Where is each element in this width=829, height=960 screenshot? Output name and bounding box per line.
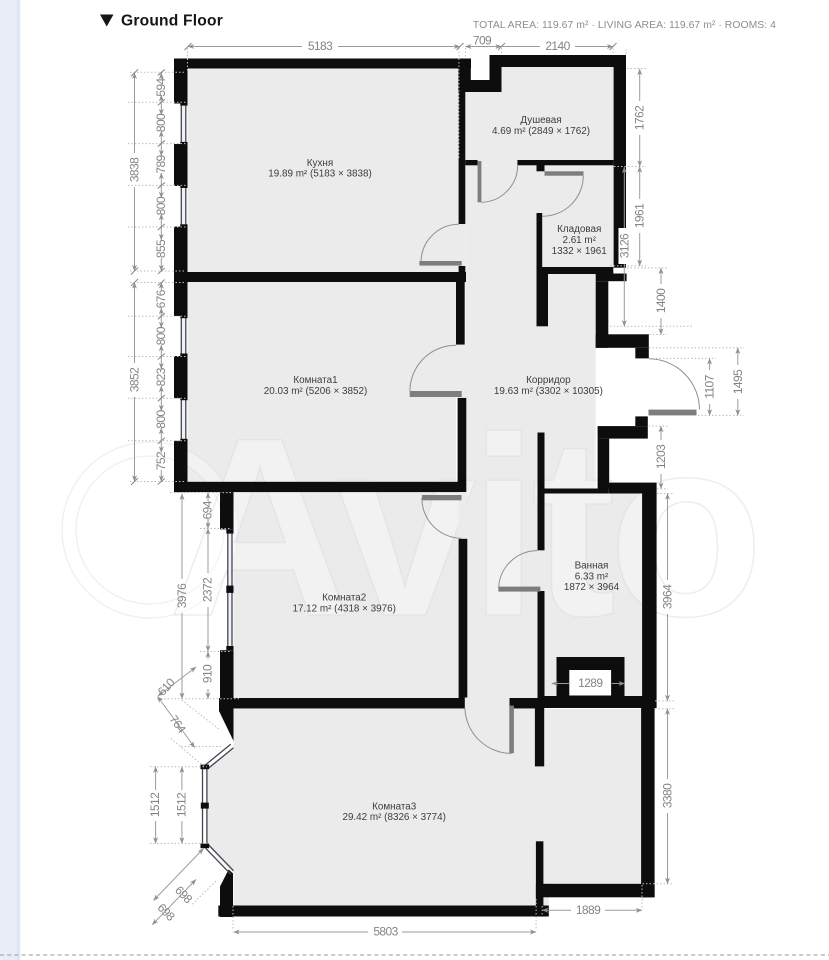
svg-text:6.33 m²: 6.33 m² bbox=[575, 572, 609, 583]
svg-text:789: 789 bbox=[154, 154, 168, 173]
svg-text:3126: 3126 bbox=[617, 233, 631, 258]
svg-text:800: 800 bbox=[154, 409, 168, 428]
svg-text:2.61 m²: 2.61 m² bbox=[562, 235, 596, 246]
svg-text:3852: 3852 bbox=[128, 367, 142, 392]
svg-text:19.63 m² (3302 × 10305): 19.63 m² (3302 × 10305) bbox=[494, 386, 603, 397]
svg-text:610: 610 bbox=[155, 675, 178, 699]
svg-text:Корридор: Корридор bbox=[526, 375, 571, 386]
svg-text:20.03 m² (5206 × 3852): 20.03 m² (5206 × 3852) bbox=[264, 386, 367, 397]
svg-text:Ванная: Ванная bbox=[575, 561, 609, 572]
svg-text:1332 × 1961: 1332 × 1961 bbox=[552, 246, 608, 257]
svg-text:19.89 m² (5183 × 3838): 19.89 m² (5183 × 3838) bbox=[268, 168, 371, 179]
svg-text:3838: 3838 bbox=[128, 157, 142, 182]
svg-text:1107: 1107 bbox=[703, 374, 717, 398]
svg-text:855: 855 bbox=[154, 239, 168, 258]
svg-text:3964: 3964 bbox=[661, 584, 675, 609]
svg-text:4.69 m² (2849 × 1762): 4.69 m² (2849 × 1762) bbox=[492, 126, 590, 137]
svg-text:698: 698 bbox=[172, 883, 195, 906]
svg-text:800: 800 bbox=[154, 326, 168, 345]
svg-text:764: 764 bbox=[166, 713, 189, 737]
svg-text:1762: 1762 bbox=[633, 105, 647, 130]
svg-text:Комната3: Комната3 bbox=[372, 801, 417, 812]
svg-text:17.12 m² (4318 × 3976): 17.12 m² (4318 × 3976) bbox=[292, 603, 395, 614]
svg-text:29.42 m² (8326 × 3774): 29.42 m² (8326 × 3774) bbox=[342, 812, 445, 823]
svg-text:1512: 1512 bbox=[174, 792, 188, 817]
svg-text:3976: 3976 bbox=[175, 583, 189, 608]
svg-text:3380: 3380 bbox=[661, 783, 675, 808]
svg-text:800: 800 bbox=[154, 113, 168, 132]
svg-text:594: 594 bbox=[154, 77, 168, 96]
svg-text:752: 752 bbox=[154, 451, 168, 470]
svg-text:823: 823 bbox=[154, 367, 168, 386]
svg-text:2140: 2140 bbox=[545, 39, 570, 53]
svg-text:1961: 1961 bbox=[633, 203, 647, 228]
svg-text:Кухня: Кухня bbox=[307, 158, 333, 169]
svg-text:Ground Floor: Ground Floor bbox=[121, 13, 223, 30]
svg-text:5183: 5183 bbox=[308, 39, 333, 53]
svg-text:Душевая: Душевая bbox=[520, 115, 561, 126]
svg-text:1512: 1512 bbox=[148, 792, 162, 817]
svg-text:TOTAL AREA: 119.67 m² · LIVIN: TOTAL AREA: 119.67 m² · LIVING AREA: 119… bbox=[473, 20, 776, 31]
svg-text:1495: 1495 bbox=[731, 369, 745, 394]
svg-text:5803: 5803 bbox=[373, 925, 398, 939]
svg-text:Комната1: Комната1 bbox=[293, 375, 338, 386]
svg-text:910: 910 bbox=[200, 664, 214, 683]
svg-text:1203: 1203 bbox=[654, 444, 668, 469]
svg-text:Кладовая: Кладовая bbox=[557, 224, 601, 235]
svg-text:676: 676 bbox=[154, 289, 168, 308]
svg-text:Комната2: Комната2 bbox=[322, 593, 366, 604]
svg-text:709: 709 bbox=[473, 34, 492, 48]
svg-text:698: 698 bbox=[155, 901, 178, 924]
svg-text:2372: 2372 bbox=[200, 577, 214, 602]
svg-text:1872 × 3964: 1872 × 3964 bbox=[564, 582, 620, 593]
svg-text:1400: 1400 bbox=[654, 288, 668, 313]
svg-text:694: 694 bbox=[200, 500, 214, 519]
svg-text:1889: 1889 bbox=[576, 903, 601, 917]
svg-text:800: 800 bbox=[154, 196, 168, 215]
svg-text:1289: 1289 bbox=[578, 676, 603, 690]
